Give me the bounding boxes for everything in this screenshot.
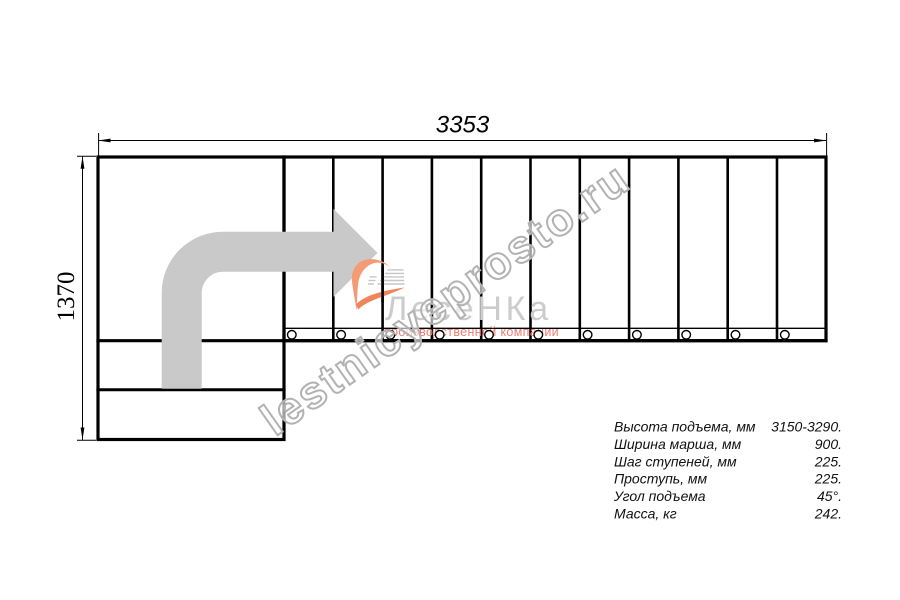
svg-text:900.: 900. — [815, 436, 842, 452]
svg-text:Проступь, мм: Проступь, мм — [614, 471, 708, 487]
svg-text:Угол подъема: Угол подъема — [613, 488, 706, 504]
svg-text:3150-3290.: 3150-3290. — [771, 419, 842, 435]
svg-text:225.: 225. — [814, 471, 842, 487]
svg-text:Ширина марша, мм: Ширина марша, мм — [614, 436, 742, 452]
svg-text:242.: 242. — [814, 506, 842, 522]
svg-text:Высота подъема, мм: Высота подъема, мм — [614, 419, 756, 435]
svg-text:225.: 225. — [814, 453, 842, 469]
svg-text:Шаг ступеней, мм: Шаг ступеней, мм — [614, 453, 737, 469]
svg-text:3353: 3353 — [436, 112, 490, 139]
svg-text:1370: 1370 — [53, 272, 80, 322]
svg-text:45°.: 45°. — [817, 488, 842, 504]
svg-text:Масса, кг: Масса, кг — [614, 506, 677, 522]
